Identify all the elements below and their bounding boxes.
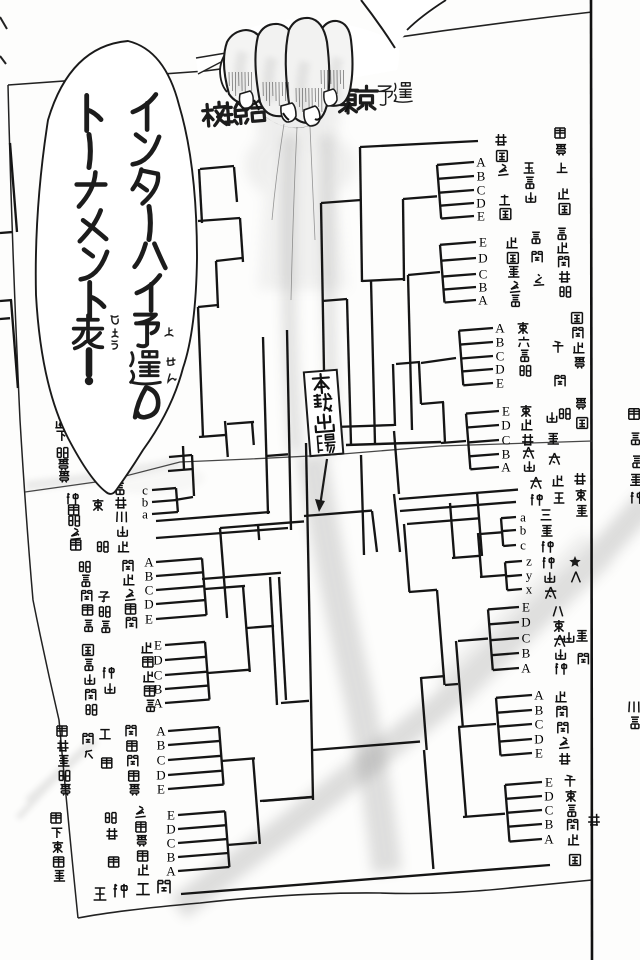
svg-text:C: C [145, 583, 154, 598]
svg-text:z: z [526, 554, 532, 569]
svg-text:E: E [535, 746, 543, 761]
svg-text:B: B [477, 169, 486, 184]
svg-text:E: E [154, 638, 162, 653]
svg-text:C: C [157, 753, 166, 768]
svg-text:A: A [495, 321, 505, 336]
svg-text:D: D [501, 418, 510, 433]
svg-text:E: E [157, 782, 165, 797]
svg-text:A: A [501, 460, 511, 475]
svg-text:B: B [522, 646, 531, 661]
svg-text:D: D [495, 362, 504, 377]
svg-text:A: A [156, 724, 166, 739]
svg-text:c: c [520, 538, 526, 553]
svg-text:B: B [157, 738, 166, 753]
svg-text:D: D [144, 597, 153, 612]
svg-text:B: B [545, 817, 554, 832]
svg-text:E: E [496, 376, 504, 391]
svg-text:C: C [545, 803, 554, 818]
svg-text:D: D [544, 789, 553, 804]
svg-text:y: y [526, 568, 533, 583]
svg-text:E: E [522, 600, 530, 615]
svg-text:D: D [521, 615, 530, 630]
svg-text:A: A [144, 555, 154, 570]
svg-text:E: E [477, 209, 485, 224]
svg-text:B: B [535, 703, 544, 718]
svg-text:D: D [478, 251, 487, 266]
svg-text:C: C [167, 836, 176, 851]
svg-text:A: A [476, 155, 486, 170]
svg-text:b: b [520, 523, 527, 538]
svg-text:E: E [502, 404, 510, 419]
svg-text:A: A [478, 293, 488, 308]
svg-text:B: B [496, 335, 505, 350]
svg-text:E: E [479, 235, 487, 250]
svg-text:x: x [526, 582, 533, 597]
svg-text:B: B [145, 569, 154, 584]
svg-text:A: A [166, 864, 176, 879]
svg-text:A: A [544, 832, 554, 847]
svg-text:C: C [522, 631, 531, 646]
svg-text:C: C [535, 717, 544, 732]
svg-text:D: D [156, 768, 165, 783]
svg-text:D: D [534, 732, 543, 747]
svg-text:A: A [534, 688, 544, 703]
svg-text:E: E [145, 612, 153, 627]
svg-text:a: a [142, 507, 148, 522]
svg-text:E: E [167, 808, 175, 823]
svg-text:D: D [153, 653, 162, 668]
svg-text:A: A [521, 661, 531, 676]
svg-text:B: B [167, 850, 176, 865]
svg-text:C: C [502, 433, 511, 448]
svg-text:C: C [154, 668, 163, 683]
svg-text:D: D [166, 822, 175, 837]
svg-text:E: E [545, 775, 553, 790]
